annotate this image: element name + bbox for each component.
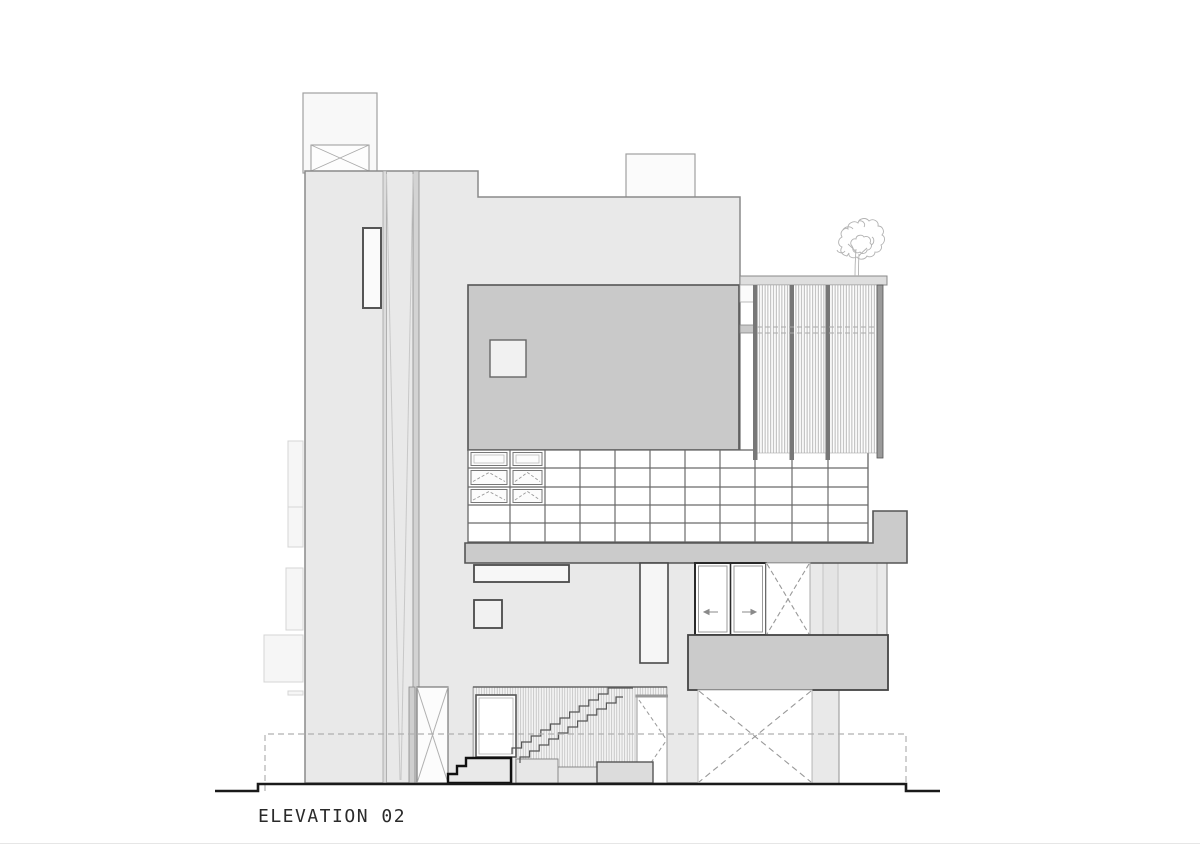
sliding-door xyxy=(695,563,766,635)
x-glass-window xyxy=(766,563,810,635)
entry-door xyxy=(476,695,516,757)
louver-screen xyxy=(740,276,887,460)
narrow-window xyxy=(363,228,381,308)
balcony xyxy=(688,635,888,690)
elevation-sheet: ELEVATION 02 xyxy=(0,0,1200,848)
water-tank-x-box xyxy=(311,145,369,171)
rooftop-box xyxy=(626,154,695,198)
garage-x-opening xyxy=(698,690,812,783)
sheet-edge-line xyxy=(0,843,1200,844)
background-buildings xyxy=(264,441,303,695)
window-grid xyxy=(468,450,868,542)
elevation-drawing xyxy=(0,0,1200,848)
small-square-window xyxy=(474,600,502,628)
louver-x-door xyxy=(409,687,448,783)
panel-opening xyxy=(490,340,526,377)
roof-tower xyxy=(303,93,377,173)
ground-line xyxy=(215,784,940,791)
louver-end-post xyxy=(877,285,883,458)
ribbon-window xyxy=(474,565,569,582)
fixed-window-panel xyxy=(471,453,542,466)
tree xyxy=(837,219,885,276)
upper-dark-panel xyxy=(468,285,739,450)
louver-top-band xyxy=(740,276,887,285)
drawing-title: ELEVATION 02 xyxy=(258,806,406,827)
tall-window xyxy=(640,563,668,663)
